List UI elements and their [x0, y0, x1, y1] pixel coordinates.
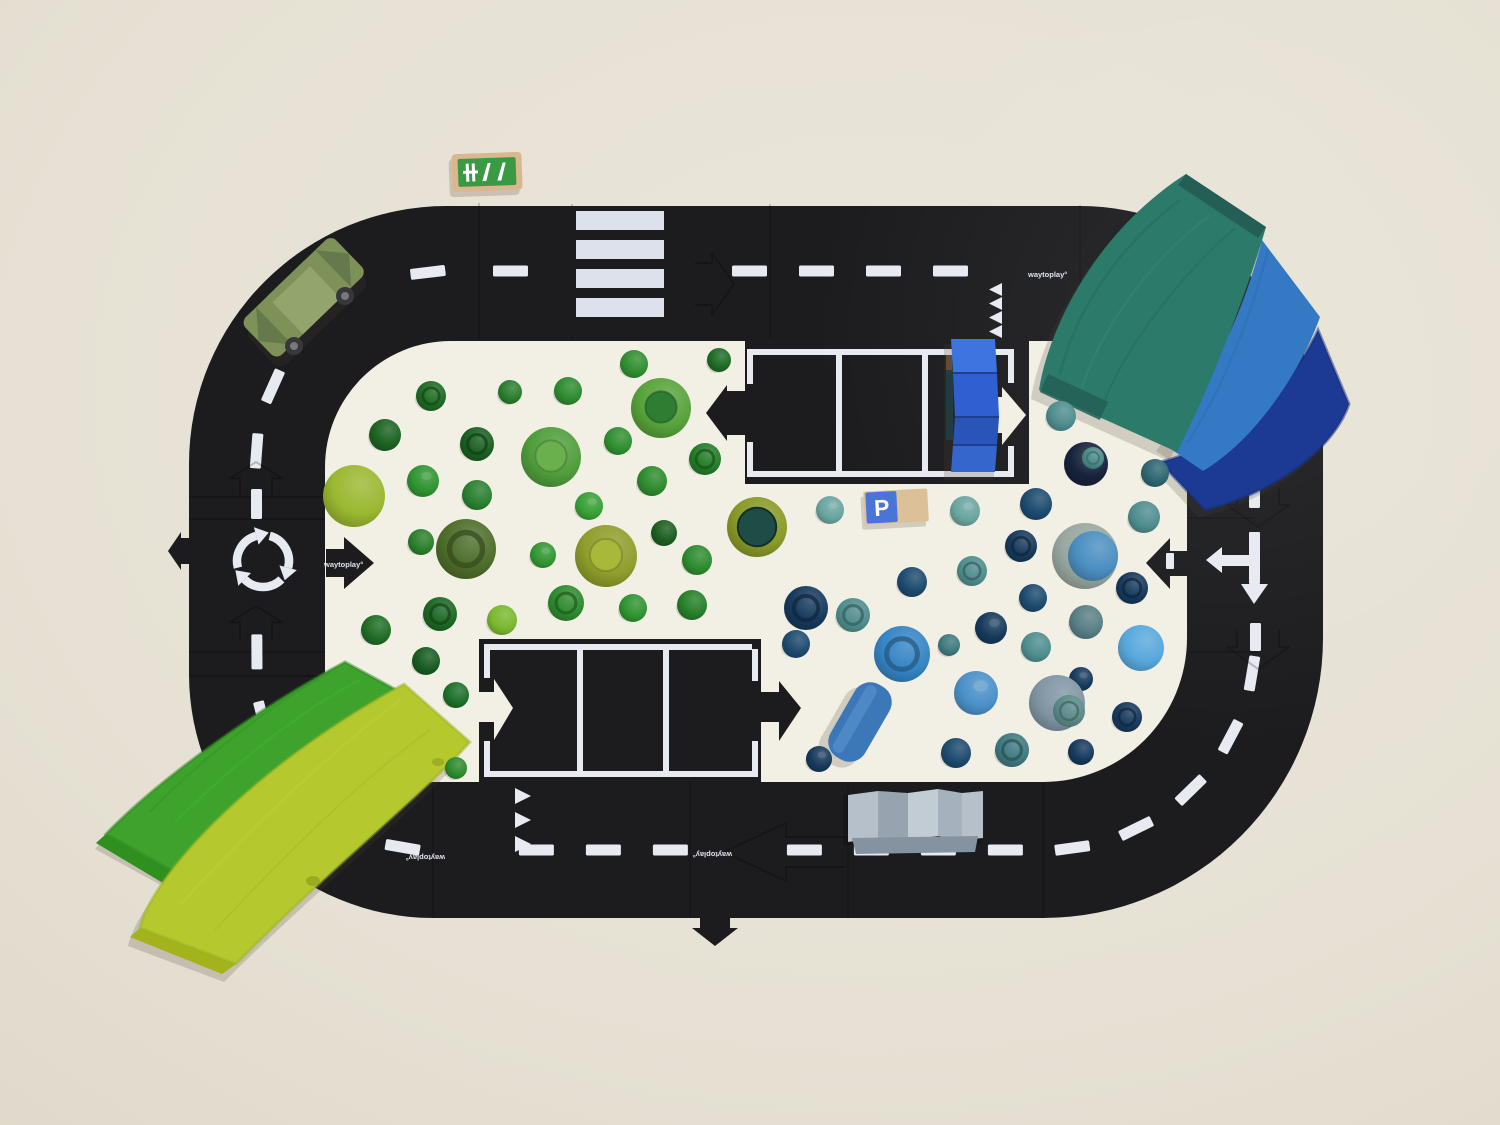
svg-text:waytoplay°: waytoplay° [406, 853, 446, 862]
svg-text:P: P [873, 494, 890, 521]
svg-text:waytoplay°: waytoplay° [693, 850, 733, 859]
svg-text:waytoplay°: waytoplay° [323, 560, 363, 569]
